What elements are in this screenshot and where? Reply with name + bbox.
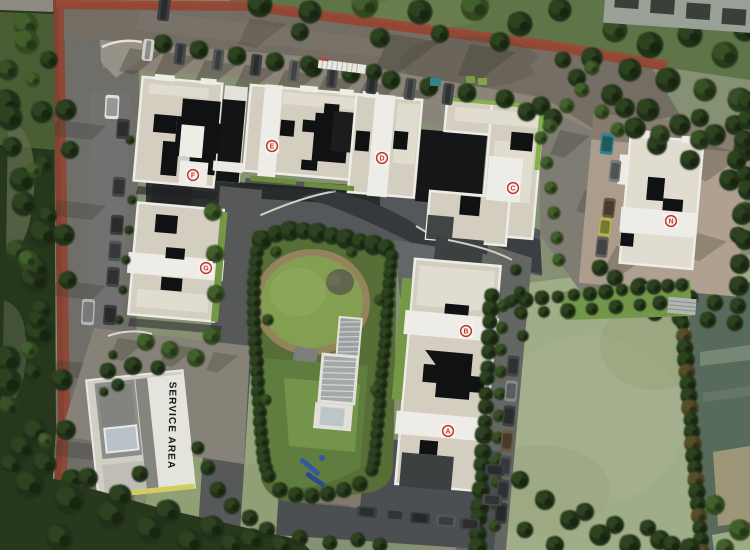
svg-text:C: C	[510, 186, 515, 193]
svg-text:N: N	[668, 219, 673, 226]
svg-text:G: G	[203, 266, 209, 273]
svg-text:A: A	[445, 429, 450, 436]
svg-text:B: B	[463, 329, 468, 336]
svg-text:D: D	[379, 156, 384, 163]
svg-text:F: F	[191, 173, 196, 180]
svg-text:E: E	[270, 144, 275, 151]
